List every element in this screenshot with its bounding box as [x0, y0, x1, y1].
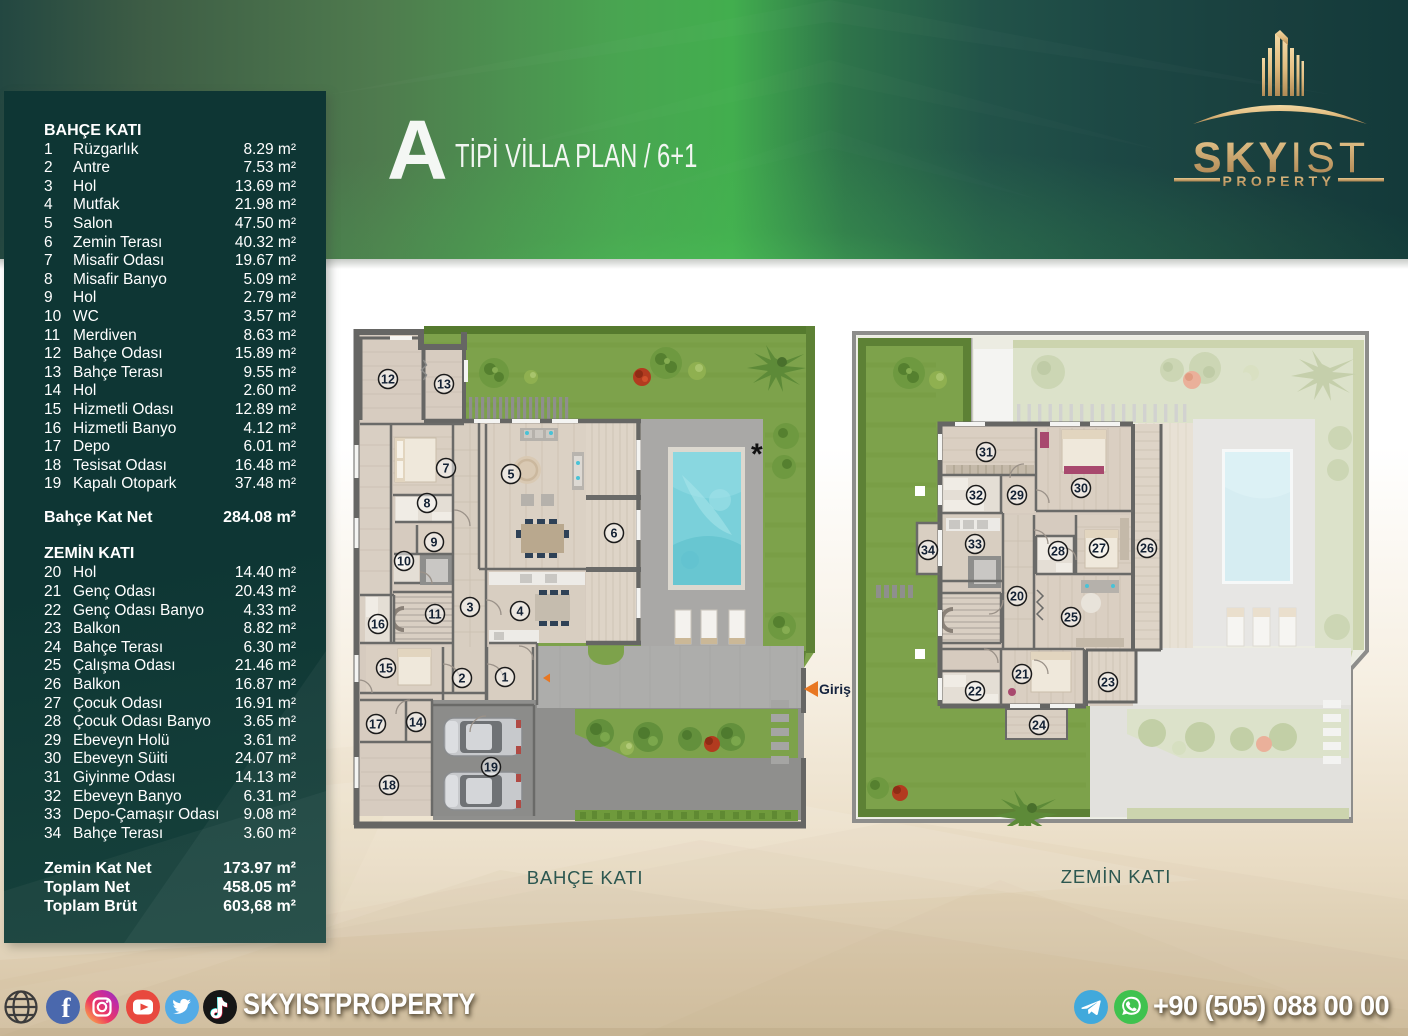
svg-text:26: 26: [1140, 542, 1154, 556]
svg-text:28: 28: [1051, 545, 1065, 559]
svg-text:9: 9: [431, 536, 438, 550]
svg-text:21: 21: [1015, 668, 1029, 682]
svg-text:PROPERTY: PROPERTY: [1222, 173, 1335, 189]
svg-text:29: 29: [1010, 489, 1024, 503]
svg-text:34: 34: [921, 544, 935, 558]
svg-text:32: 32: [969, 489, 983, 503]
svg-text:22: 22: [968, 685, 982, 699]
svg-text:30: 30: [1074, 482, 1088, 496]
svg-text:5: 5: [508, 468, 515, 482]
svg-text:2: 2: [459, 672, 466, 686]
svg-text:33: 33: [968, 538, 982, 552]
svg-text:25: 25: [1064, 611, 1078, 625]
svg-text:23: 23: [1101, 676, 1115, 690]
svg-text:11: 11: [428, 608, 441, 622]
svg-text:14: 14: [409, 716, 423, 730]
svg-text:4: 4: [517, 605, 524, 619]
svg-text:*: *: [751, 438, 763, 471]
svg-text:18: 18: [382, 779, 396, 793]
svg-text:17: 17: [369, 718, 383, 732]
svg-text:12: 12: [381, 373, 395, 387]
svg-text:20: 20: [1010, 590, 1024, 604]
svg-text:f: f: [62, 993, 72, 1023]
svg-text:13: 13: [437, 378, 451, 392]
svg-text:16: 16: [371, 618, 385, 632]
svg-text:31: 31: [979, 446, 993, 460]
svg-text:24: 24: [1032, 719, 1046, 733]
svg-text:Giriş: Giriş: [819, 681, 851, 697]
svg-text:7: 7: [443, 462, 450, 476]
svg-text:6: 6: [611, 527, 618, 541]
svg-text:15: 15: [379, 662, 393, 676]
svg-text:8: 8: [424, 497, 431, 511]
svg-text:27: 27: [1092, 542, 1106, 556]
svg-text:19: 19: [484, 761, 498, 775]
svg-text:1: 1: [502, 671, 509, 685]
svg-text:3: 3: [467, 601, 474, 615]
svg-text:10: 10: [397, 555, 411, 569]
